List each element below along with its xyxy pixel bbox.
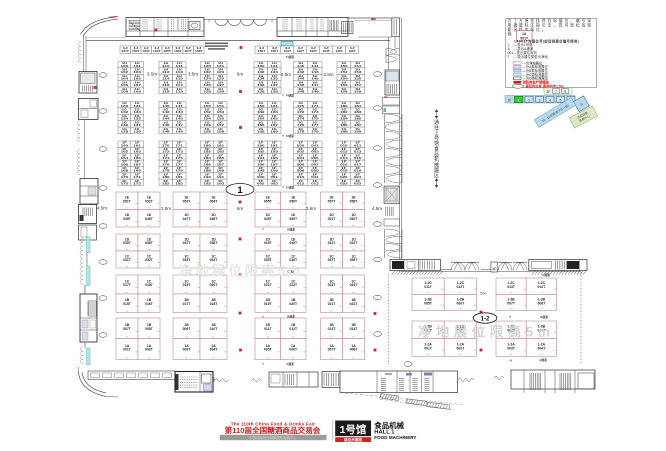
svg-text:7m: 7m	[427, 292, 430, 294]
svg-text:195T: 195T	[335, 49, 343, 53]
svg-text:7m: 7m	[459, 292, 462, 294]
svg-text:001: 001	[270, 175, 278, 179]
svg-text:020T: 020T	[289, 302, 298, 306]
svg-text:019T: 019T	[264, 302, 273, 306]
svg-text:148: 148	[162, 129, 170, 133]
svg-text:035T: 035T	[123, 241, 132, 245]
svg-text:186: 186	[340, 123, 348, 127]
svg-text:004T: 004T	[210, 348, 219, 352]
svg-text:192: 192	[203, 181, 211, 185]
svg-text:138: 138	[121, 129, 129, 133]
svg-text:例:: 例:	[508, 32, 513, 37]
svg-text:7m: 7m	[441, 350, 444, 352]
svg-text:151: 151	[217, 104, 225, 108]
svg-text:115: 115	[175, 77, 183, 81]
svg-text:7m: 7m	[459, 354, 462, 356]
svg-text:012: 012	[297, 181, 305, 185]
svg-text:153: 153	[217, 110, 225, 114]
svg-text:014T: 014T	[538, 285, 547, 289]
svg-text:123: 123	[217, 70, 225, 74]
svg-text:107: 107	[133, 83, 141, 87]
svg-text:182: 182	[162, 181, 170, 185]
svg-text:003: 003	[270, 181, 278, 185]
svg-text:184: 184	[203, 156, 211, 160]
svg-text:019T: 019T	[183, 283, 192, 287]
svg-text:021: 021	[354, 175, 362, 179]
svg-text:FOOD MACHINERY: FOOD MACHINERY	[374, 435, 416, 440]
svg-text:7m: 7m	[510, 354, 513, 356]
svg-text:042T: 042T	[350, 241, 359, 245]
svg-text:058T: 058T	[350, 199, 359, 203]
svg-text:138: 138	[257, 89, 265, 93]
svg-text:023T: 023T	[328, 283, 337, 287]
svg-text:008: 008	[297, 169, 305, 173]
svg-text:195: 195	[270, 156, 278, 160]
svg-text:053T: 053T	[183, 199, 192, 203]
svg-text:193T: 193T	[310, 49, 318, 53]
svg-text:003: 003	[311, 150, 319, 154]
svg-text:132: 132	[121, 110, 129, 114]
svg-text:148: 148	[297, 89, 305, 93]
svg-text:015: 015	[354, 156, 362, 160]
svg-text:125: 125	[217, 77, 225, 81]
svg-text:1F: 1F	[508, 98, 512, 102]
svg-text:146: 146	[162, 123, 170, 127]
svg-text:180: 180	[203, 143, 211, 147]
svg-text:7m: 7m	[427, 308, 430, 310]
svg-text:007T: 007T	[328, 348, 337, 352]
svg-text:012: 012	[340, 150, 348, 154]
svg-text:7m: 7m	[474, 350, 477, 352]
svg-text:005T: 005T	[264, 348, 273, 352]
svg-text:038T: 038T	[210, 241, 219, 245]
svg-text:第110届全国糖酒商品交易会: 第110届全国糖酒商品交易会	[225, 425, 321, 435]
svg-text:3: 3	[539, 98, 541, 102]
svg-text:177: 177	[311, 123, 319, 127]
svg-text:173: 173	[133, 181, 141, 185]
svg-text:149: 149	[175, 129, 183, 133]
svg-text:001T: 001T	[424, 346, 433, 350]
svg-text:164: 164	[121, 156, 129, 160]
svg-text:7m: 7m	[441, 289, 444, 291]
svg-text:7m: 7m	[510, 292, 513, 294]
svg-text:169: 169	[270, 129, 278, 133]
svg-text:021T: 021T	[264, 283, 273, 287]
svg-text:055T: 055T	[264, 199, 273, 203]
svg-text:7m: 7m	[474, 289, 477, 291]
svg-text:011: 011	[354, 143, 362, 147]
svg-text:112: 112	[162, 70, 170, 74]
svg-text:162: 162	[121, 150, 129, 154]
svg-text:净地展位限高5m: 净地展位限高5m	[179, 263, 304, 279]
svg-text:105: 105	[133, 77, 141, 81]
svg-text:1号馆: 1号馆	[340, 423, 367, 436]
svg-text:188: 188	[340, 129, 348, 133]
svg-text:182T: 182T	[132, 49, 140, 53]
svg-text:4.5m: 4.5m	[372, 206, 382, 211]
svg-text:183: 183	[354, 110, 362, 114]
svg-text:012T: 012T	[457, 285, 466, 289]
svg-text:1: 1	[237, 185, 243, 196]
svg-text:140: 140	[162, 104, 170, 108]
svg-text:182: 182	[340, 110, 348, 114]
svg-text:155: 155	[217, 117, 225, 121]
svg-text:3.5m: 3.5m	[323, 72, 333, 77]
svg-text:7m: 7m	[427, 354, 430, 356]
svg-text:117: 117	[175, 83, 183, 87]
svg-text:006T: 006T	[457, 301, 466, 305]
svg-text:160: 160	[257, 104, 265, 108]
svg-text:100: 100	[121, 64, 129, 68]
svg-text:181: 181	[354, 104, 362, 108]
svg-text:198: 198	[257, 169, 265, 173]
svg-text:183T: 183T	[142, 49, 150, 53]
svg-text:171: 171	[175, 143, 183, 147]
svg-text:159: 159	[217, 129, 225, 133]
svg-text:013: 013	[311, 181, 319, 185]
svg-text:5: 5	[560, 98, 562, 102]
svg-text:143: 143	[175, 110, 183, 114]
svg-text:7m: 7m	[441, 305, 444, 307]
svg-text:001: 001	[311, 143, 319, 147]
svg-text:146: 146	[297, 83, 305, 87]
svg-text:185: 185	[217, 156, 225, 160]
svg-text:182: 182	[203, 150, 211, 154]
svg-text:147: 147	[311, 83, 319, 87]
svg-text:7m: 7m	[554, 305, 557, 307]
svg-text:158: 158	[340, 89, 348, 93]
svg-text:178: 178	[297, 129, 305, 133]
svg-text:011T: 011T	[264, 327, 272, 331]
svg-text:111: 111	[175, 64, 184, 68]
svg-text:150: 150	[340, 64, 348, 68]
svg-text:173: 173	[311, 110, 319, 114]
svg-text:102: 102	[121, 70, 129, 74]
svg-text:145: 145	[311, 77, 319, 81]
svg-text:144: 144	[297, 77, 305, 81]
svg-text:7m: 7m	[554, 350, 557, 352]
svg-text:7m: 7m	[474, 305, 477, 307]
svg-text:019: 019	[354, 169, 362, 173]
svg-text:145: 145	[175, 117, 183, 121]
svg-text:170: 170	[162, 143, 170, 147]
svg-text:051T: 051T	[328, 217, 337, 221]
svg-text:158: 158	[203, 129, 211, 133]
svg-text:5m: 5m	[480, 291, 486, 296]
svg-text:144: 144	[162, 117, 170, 121]
svg-text:108: 108	[121, 89, 129, 93]
svg-text:018T: 018T	[210, 302, 219, 306]
svg-text:193: 193	[270, 150, 278, 154]
svg-text:051T: 051T	[123, 199, 132, 203]
svg-text:7m: 7m	[540, 292, 543, 294]
svg-text:114: 114	[162, 77, 170, 81]
svg-text:171: 171	[311, 104, 319, 108]
svg-text:净地展位限高5m: 净地展位限高5m	[418, 324, 555, 340]
svg-text:152: 152	[340, 70, 348, 74]
svg-text:162: 162	[257, 110, 265, 114]
svg-text:013T: 013T	[507, 285, 516, 289]
svg-text:101: 101	[133, 64, 141, 68]
svg-text:183: 183	[175, 181, 183, 185]
svg-text:7m: 7m	[523, 305, 526, 307]
svg-text:021T: 021T	[328, 302, 337, 306]
svg-text:134: 134	[121, 117, 129, 121]
svg-text:017: 017	[354, 162, 362, 166]
svg-text:192T: 192T	[297, 49, 305, 53]
svg-text:171: 171	[133, 175, 141, 179]
svg-text:039T: 039T	[264, 241, 273, 245]
svg-text:155: 155	[354, 77, 362, 81]
svg-text:022T: 022T	[350, 302, 359, 306]
svg-text:190T: 190T	[271, 49, 279, 53]
svg-text:054T: 054T	[210, 199, 219, 203]
svg-text:196: 196	[257, 162, 265, 166]
svg-text:057T: 057T	[328, 199, 337, 203]
svg-text:126: 126	[203, 83, 211, 87]
svg-text:052T: 052T	[350, 217, 359, 221]
svg-text:008T: 008T	[145, 327, 154, 331]
svg-text:009: 009	[311, 169, 319, 173]
svg-text:056T: 056T	[289, 199, 298, 203]
svg-text:040T: 040T	[289, 241, 298, 245]
svg-text:007T: 007T	[123, 327, 132, 331]
svg-text:B通道: B通道	[287, 315, 295, 319]
svg-text:136: 136	[257, 83, 265, 87]
svg-text:6m: 6m	[237, 72, 244, 77]
svg-text:7: 7	[555, 90, 557, 94]
svg-text:132: 132	[257, 70, 265, 74]
svg-text:178: 178	[162, 169, 170, 173]
svg-text:143: 143	[311, 70, 319, 74]
svg-text:002: 002	[297, 150, 305, 154]
svg-text:003T: 003T	[183, 348, 192, 352]
svg-text:E1通道: E1通道	[286, 186, 295, 190]
svg-text:133: 133	[270, 70, 278, 74]
svg-text:135: 135	[133, 117, 141, 121]
svg-text:024T: 024T	[350, 283, 359, 287]
svg-text:136: 136	[121, 123, 129, 127]
svg-text:023: 023	[354, 181, 362, 185]
svg-text:181: 181	[175, 175, 183, 179]
svg-text:014T: 014T	[350, 327, 359, 331]
svg-text:T —表示展位类型为净地: T —表示展位类型为净地	[508, 54, 549, 59]
svg-text:037T: 037T	[183, 241, 192, 245]
svg-text:005: 005	[311, 156, 319, 160]
svg-text:中国成都世纪城新国际会展中心: 中国成都世纪城新国际会展中心	[249, 435, 297, 440]
svg-text:048T: 048T	[210, 217, 219, 221]
svg-text:009T: 009T	[183, 327, 192, 331]
svg-text:133: 133	[133, 110, 141, 114]
svg-text:175: 175	[175, 156, 183, 160]
svg-text:001T: 001T	[123, 348, 132, 352]
svg-text:122: 122	[203, 70, 211, 74]
svg-text:165: 165	[133, 156, 141, 160]
svg-text:161: 161	[270, 104, 278, 108]
svg-text:7m: 7m	[540, 308, 543, 310]
svg-text:104: 104	[121, 77, 129, 81]
svg-text:3.5m: 3.5m	[281, 72, 291, 77]
svg-text:130: 130	[257, 64, 265, 68]
svg-text:154: 154	[203, 117, 211, 121]
svg-text:034T: 034T	[210, 258, 219, 262]
svg-text:4: 4	[549, 98, 551, 102]
svg-text:000: 000	[297, 143, 305, 147]
svg-text:7m: 7m	[459, 308, 462, 310]
svg-text:7m: 7m	[554, 289, 557, 291]
svg-text:187: 187	[217, 162, 225, 166]
svg-text:134: 134	[257, 77, 265, 81]
svg-text:011: 011	[311, 175, 319, 179]
svg-text:7m: 7m	[540, 354, 543, 356]
svg-text:181T: 181T	[121, 49, 129, 53]
svg-text:4.5m: 4.5m	[97, 206, 107, 211]
svg-text:188: 188	[203, 169, 211, 173]
svg-text:006T: 006T	[289, 348, 298, 352]
svg-text:193: 193	[217, 181, 225, 185]
svg-text:010: 010	[340, 143, 348, 147]
svg-text:109: 109	[133, 89, 141, 93]
svg-text:172: 172	[162, 150, 170, 154]
svg-text:185: 185	[354, 117, 362, 121]
svg-text:3.5m: 3.5m	[161, 206, 171, 211]
svg-text:3.5m: 3.5m	[188, 72, 198, 77]
svg-text:004: 004	[297, 156, 305, 160]
svg-text:175: 175	[311, 117, 319, 121]
svg-text:017T: 017T	[123, 283, 132, 287]
svg-text:000: 000	[257, 175, 265, 179]
svg-text:035T: 035T	[264, 258, 273, 262]
svg-text:157: 157	[354, 83, 362, 87]
svg-text:191: 191	[217, 175, 225, 179]
svg-text:022: 022	[340, 181, 348, 185]
svg-text:020: 020	[340, 175, 348, 179]
svg-text:129: 129	[217, 89, 225, 93]
svg-text:106: 106	[121, 83, 129, 87]
svg-text:153: 153	[354, 70, 362, 74]
svg-text:167: 167	[133, 162, 141, 166]
svg-text:018T: 018T	[145, 283, 154, 287]
svg-text:141: 141	[311, 64, 319, 68]
svg-text:152: 152	[203, 110, 211, 114]
svg-text:149: 149	[311, 89, 319, 93]
svg-text:180: 180	[340, 104, 348, 108]
svg-text:189: 189	[217, 169, 225, 173]
svg-text:037T: 037T	[328, 258, 337, 262]
svg-text:049T: 049T	[264, 217, 273, 221]
svg-text:169: 169	[133, 169, 141, 173]
svg-text:3.5m: 3.5m	[306, 206, 316, 211]
svg-text:2F: 2F	[547, 90, 551, 94]
svg-text:050T: 050T	[289, 217, 298, 221]
svg-text:128: 128	[203, 89, 211, 93]
svg-text:016T: 016T	[145, 302, 154, 306]
svg-text:014: 014	[340, 156, 348, 160]
svg-text:用通道标注指引法，您可轻松找到: 用通道标注指引法，您可轻松找到	[508, 23, 593, 28]
svg-text:140: 140	[297, 64, 305, 68]
svg-text:168: 168	[121, 169, 129, 173]
svg-text:135: 135	[270, 77, 278, 81]
svg-text:7m: 7m	[523, 289, 526, 291]
svg-text:展位示意图: 展位示意图	[344, 437, 362, 442]
svg-text:F4通道: F4通道	[286, 94, 295, 98]
svg-text:017T: 017T	[183, 302, 192, 306]
svg-text:C通道: C通道	[542, 273, 550, 277]
svg-text:036T: 036T	[289, 258, 298, 262]
svg-text:B通道: B通道	[540, 315, 548, 319]
svg-text:156: 156	[340, 83, 348, 87]
svg-text:F1通道: F1通道	[286, 55, 295, 59]
svg-text:022T: 022T	[289, 283, 298, 287]
svg-text:015T: 015T	[123, 302, 132, 306]
svg-text:A通道: A通道	[539, 358, 547, 362]
svg-text:194T: 194T	[322, 49, 330, 53]
svg-text:154: 154	[340, 77, 348, 81]
svg-text:121: 121	[217, 64, 225, 68]
svg-text:003T: 003T	[507, 346, 516, 350]
svg-text:157: 157	[217, 123, 225, 127]
svg-text:150: 150	[203, 104, 211, 108]
svg-text:139: 139	[270, 89, 278, 93]
svg-text:008T: 008T	[538, 301, 547, 305]
svg-text:013T: 013T	[328, 327, 337, 331]
svg-text:141: 141	[175, 104, 183, 108]
svg-text:002T: 002T	[145, 348, 154, 352]
svg-text:166: 166	[121, 162, 129, 166]
svg-text:012T: 012T	[289, 327, 298, 331]
svg-text:119: 119	[175, 89, 183, 93]
svg-text:002: 002	[257, 181, 265, 185]
svg-text:174: 174	[162, 156, 170, 160]
svg-text:013: 013	[354, 150, 362, 154]
svg-text:016: 016	[340, 162, 348, 166]
svg-text:031T: 031T	[123, 258, 132, 262]
svg-text:033T: 033T	[183, 258, 192, 262]
svg-text:A通道: A通道	[286, 362, 294, 366]
svg-text:187: 187	[354, 123, 362, 127]
svg-text:142: 142	[162, 110, 170, 114]
svg-text:165: 165	[270, 117, 278, 121]
svg-text:3.5m: 3.5m	[147, 72, 157, 77]
svg-text:131: 131	[133, 104, 141, 108]
svg-text:177: 177	[175, 162, 183, 166]
svg-text:179: 179	[175, 169, 183, 173]
svg-text:002T: 002T	[457, 346, 466, 350]
svg-text:007: 007	[311, 162, 319, 166]
svg-text:159: 159	[354, 89, 362, 93]
svg-text:103: 103	[133, 70, 141, 74]
svg-text:F3通道: F3通道	[286, 134, 295, 138]
svg-text:007T: 007T	[507, 301, 516, 305]
svg-text:168: 168	[257, 129, 265, 133]
svg-text:2: 2	[528, 98, 530, 102]
svg-text:151: 151	[354, 64, 362, 68]
svg-text:199: 199	[270, 169, 278, 173]
svg-text:190: 190	[203, 175, 211, 179]
svg-text:187T: 187T	[184, 49, 192, 53]
svg-text:172: 172	[121, 181, 129, 185]
svg-text:020T: 020T	[210, 283, 219, 287]
svg-text:163: 163	[270, 110, 278, 114]
svg-text:183: 183	[217, 150, 225, 154]
svg-text:185T: 185T	[163, 49, 171, 53]
svg-text:188T: 188T	[195, 49, 203, 53]
svg-text:174: 174	[297, 117, 305, 121]
svg-text:196T: 196T	[348, 49, 356, 53]
svg-text:004T: 004T	[538, 346, 547, 350]
svg-text:005T: 005T	[424, 301, 433, 305]
svg-text:197: 197	[270, 162, 278, 166]
